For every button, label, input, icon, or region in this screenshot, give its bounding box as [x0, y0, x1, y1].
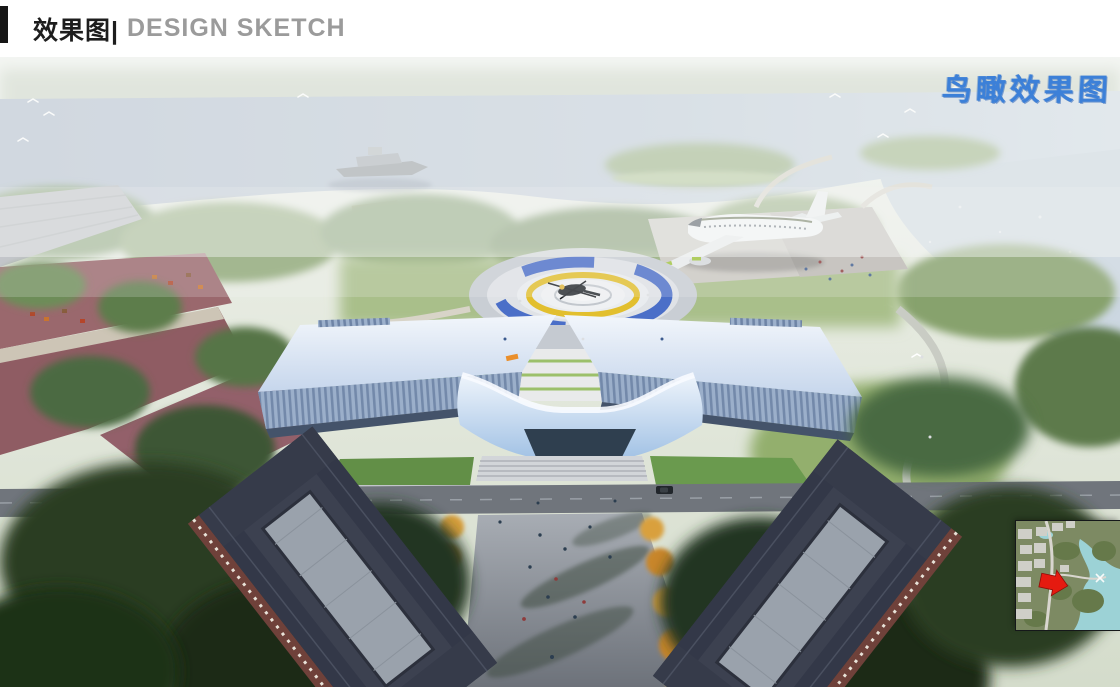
- site-map: [1016, 521, 1120, 630]
- car: [656, 486, 673, 494]
- site-map-inset: [1016, 521, 1120, 630]
- aerial-rendering: [0, 57, 1120, 687]
- page-title: 效果图| DESIGN SKETCH: [33, 0, 346, 57]
- title-chinese: 效果图|: [33, 11, 119, 47]
- accent-bar: [0, 6, 8, 43]
- design-sketch-slide: 效果图| DESIGN SKETCH: [0, 0, 1120, 687]
- title-english: DESIGN SKETCH: [127, 14, 346, 43]
- hero-caption: 鸟瞰效果图: [941, 65, 1113, 109]
- rendering-area: 鸟瞰效果图: [0, 57, 1120, 687]
- slide-header: 效果图| DESIGN SKETCH: [0, 0, 1120, 57]
